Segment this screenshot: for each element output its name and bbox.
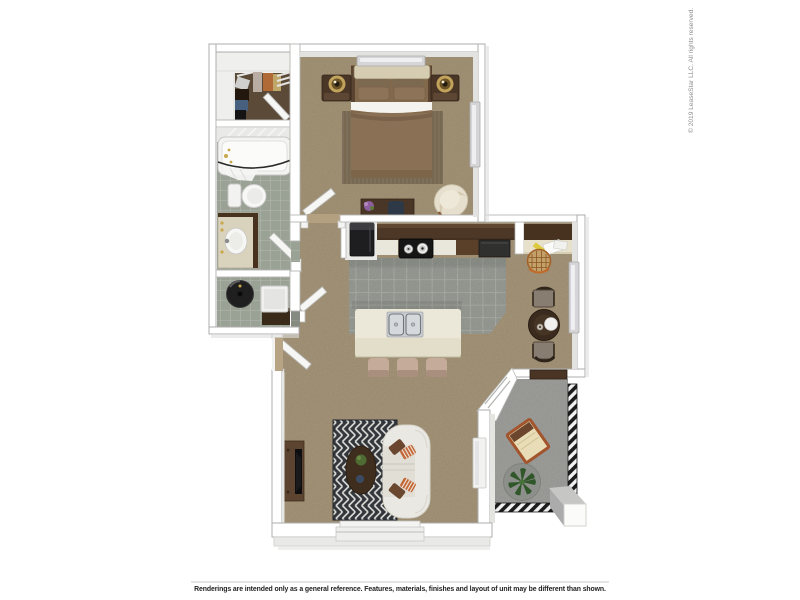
- svg-text:© 2019 LeaseStar LLC. All righ: © 2019 LeaseStar LLC. All rights reserve…: [687, 8, 695, 133]
- svg-text:Renderings are intended only a: Renderings are intended only as a genera…: [194, 586, 606, 593]
